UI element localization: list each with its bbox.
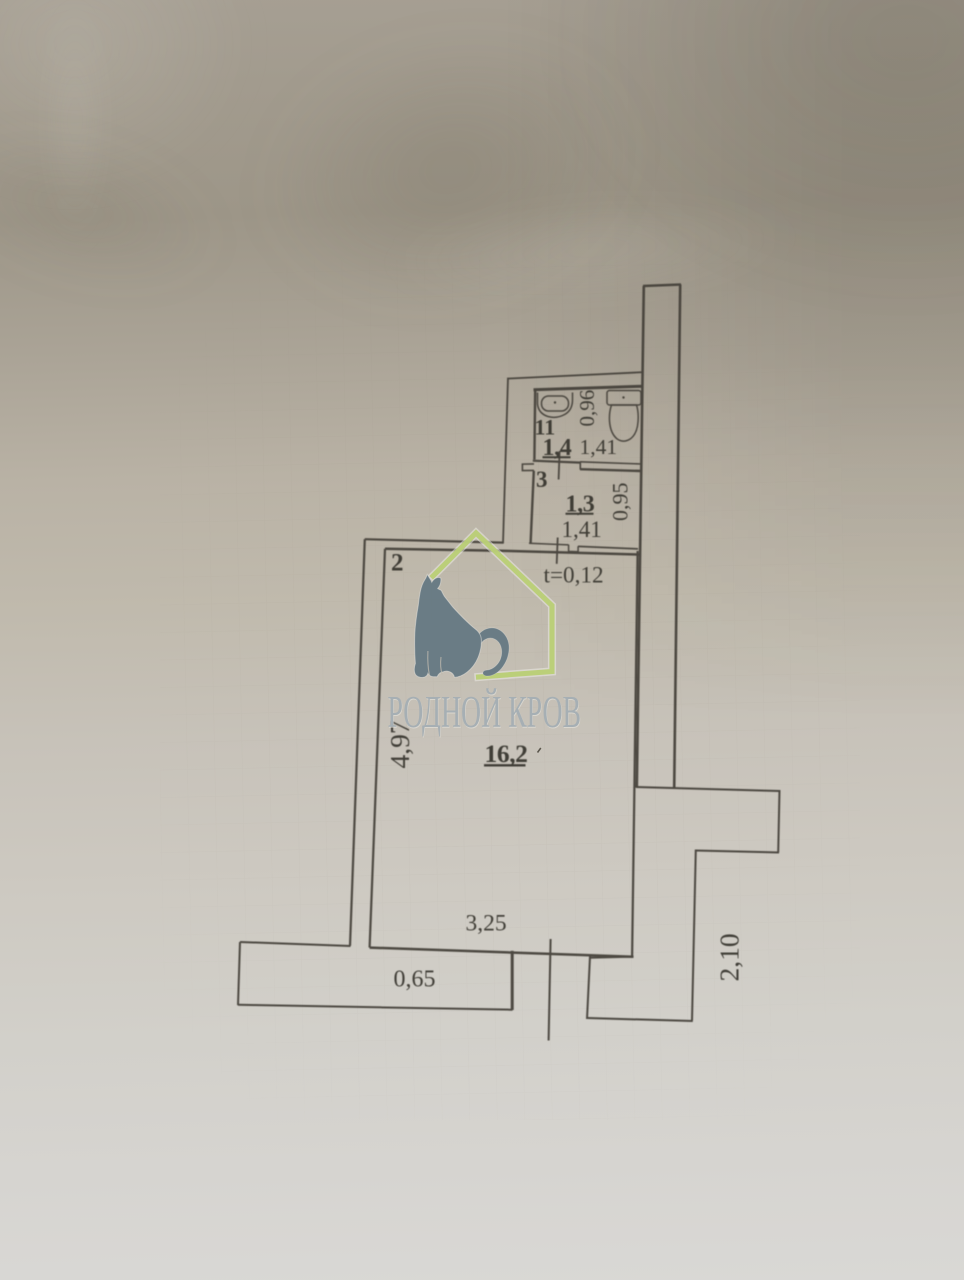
svg-text:РОДНОЙ КРОВ: РОДНОЙ КРОВ — [388, 687, 582, 738]
